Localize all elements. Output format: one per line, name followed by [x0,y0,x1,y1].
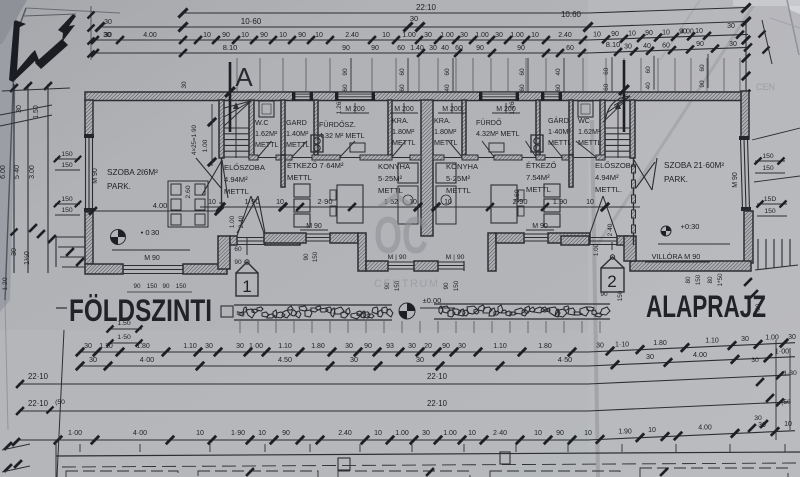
svg-text:60: 60 [519,84,526,92]
svg-text:10: 10 [208,199,216,206]
svg-text:METTL: METTL [255,140,279,149]
svg-text:4·00: 4·00 [140,355,154,364]
svg-text:7.54M²: 7.54M² [526,173,550,182]
svg-text:10: 10 [382,32,390,39]
svg-text:6.00: 6.00 [0,165,7,179]
svg-text:ELŐSZOBA: ELŐSZOBA [224,163,266,172]
svg-text:1.26: 1.26 [336,101,343,114]
svg-text:40: 40 [645,82,652,90]
svg-text:1*50: 1*50 [717,273,724,286]
svg-text:1.10: 1.10 [705,337,719,344]
svg-text:2.40: 2.40 [345,32,359,39]
svg-text:A: A [235,62,253,92]
svg-text:30: 30 [345,343,353,350]
svg-text:4.00: 4.00 [698,425,712,432]
svg-text:4.00: 4.00 [693,350,707,359]
svg-text:10·60: 10·60 [241,17,262,26]
svg-text:FÜRDŐSZ.: FÜRDŐSZ. [319,120,356,129]
svg-text:PARK.: PARK. [107,182,131,191]
svg-text:10: 10 [279,32,287,39]
svg-text:M 90: M 90 [732,172,739,188]
svg-text:1.20: 1.20 [2,277,9,290]
svg-text:60: 60 [234,246,242,253]
svg-text:(50: (50 [55,399,65,406]
svg-text:1.80M²: 1.80M² [392,127,415,136]
svg-text:1.00: 1.00 [443,430,457,437]
svg-text:SZOBA 2ℓ6M²: SZOBA 2ℓ6M² [107,168,158,177]
svg-text:80: 80 [707,276,714,284]
svg-text:90: 90 [645,30,653,37]
svg-text:90: 90 [222,32,230,39]
svg-text:W.C: W.C [255,118,269,127]
svg-text:10: 10 [315,32,323,39]
svg-text:METTL: METTL [378,186,403,195]
svg-text:4.94M²: 4.94M² [224,175,248,184]
svg-text:150: 150 [61,207,73,214]
svg-text:30: 30 [495,32,503,39]
svg-text:22·10: 22·10 [28,399,49,408]
svg-text:VILLÓRA M 90: VILLÓRA M 90 [652,252,701,261]
svg-text:• 0 30: • 0 30 [141,228,160,237]
svg-text:30: 30 [84,343,92,350]
svg-text:M 90: M 90 [306,223,322,230]
svg-text:1.80M²: 1.80M² [434,127,457,136]
svg-text:1·10: 1·10 [615,342,629,349]
svg-text:30: 30 [424,32,432,39]
svg-text:2: 2 [607,272,616,291]
svg-text:2·40: 2·40 [493,430,507,437]
svg-text:5·40: 5·40 [14,165,21,179]
svg-text:90: 90 [517,45,525,52]
svg-text:10: 10 [593,32,601,39]
svg-text:60: 60 [397,45,405,52]
svg-text:30: 30 [646,352,654,361]
svg-text:2·40: 2·40 [607,223,614,236]
svg-text:40: 40 [441,45,449,52]
svg-text:90: 90 [342,45,350,52]
svg-text:90: 90 [371,45,379,52]
svg-text:150: 150 [61,196,73,203]
svg-text:93: 93 [386,343,394,350]
svg-text:10: 10 [628,31,636,38]
svg-text:1½0: 1½0 [23,251,31,265]
svg-text:150: 150 [764,208,776,215]
svg-text:4.50: 4.50 [278,355,292,364]
svg-text:80: 80 [685,276,692,284]
svg-text:150: 150 [762,153,774,160]
svg-text:90: 90 [442,343,450,350]
svg-text:150: 150 [61,151,73,158]
svg-text:60: 60 [566,45,574,52]
svg-text:90: 90 [298,32,306,39]
svg-text:22·10: 22·10 [427,372,448,381]
svg-text:1.00: 1.00 [765,335,779,342]
svg-text:1.00: 1.00 [440,32,454,39]
svg-text:30: 30 [103,32,111,39]
svg-text:30: 30 [460,32,468,39]
svg-text:90: 90 [556,430,564,437]
svg-text:15D: 15D [764,196,777,203]
svg-text:60: 60 [645,66,652,74]
svg-text:60: 60 [399,84,406,92]
svg-text:10: 10 [695,28,703,35]
svg-text:2·40: 2·40 [238,215,245,228]
svg-text:150: 150 [695,274,702,285]
svg-text:22:10: 22:10 [416,3,437,12]
svg-text:GÁRD: GÁRD [548,116,569,125]
svg-text:2.40: 2.40 [338,430,352,437]
svg-text:M 90: M 90 [92,168,99,184]
svg-text:60: 60 [603,67,610,75]
svg-text:M | 90: M | 90 [446,254,465,261]
svg-text:90: 90 [282,430,290,437]
svg-text:90: 90 [476,45,484,52]
svg-text:60: 60 [603,83,610,91]
svg-text:ÉTKEZŐ 7·64M²: ÉTKEZŐ 7·64M² [287,161,344,170]
svg-text:METTL: METTL [434,138,458,147]
svg-text:1.00: 1.00 [202,139,209,152]
svg-text:1·26: 1·26 [509,101,516,114]
svg-text:M 90: M 90 [532,223,548,230]
svg-text:150: 150 [312,251,319,262]
svg-text:8.10: 8.10 [223,43,238,52]
svg-text:1.80: 1.80 [311,343,325,350]
svg-text:CENTRUM: CENTRUM [374,278,440,290]
svg-text:SZOBA 21·60M²: SZOBA 21·60M² [664,161,724,170]
svg-text:10: 10 [531,32,539,39]
svg-text:30: 30 [458,343,466,350]
svg-text:ALAPRAJZ: ALAPRAJZ [646,288,766,324]
svg-text:90: 90 [364,343,372,350]
svg-text:150: 150 [176,283,187,290]
svg-text:40: 40 [555,68,562,76]
svg-text:8.10: 8.10 [606,40,621,49]
svg-text:40: 40 [444,84,451,92]
svg-text:PARK.: PARK. [664,175,688,184]
svg-text:10: 10 [586,199,594,206]
svg-text:30: 30 [236,343,244,350]
svg-text:10:60: 10:60 [561,10,582,19]
svg-text:30: 30 [788,334,796,341]
svg-text:1·40M²: 1·40M² [548,127,571,136]
svg-text:90: 90 [443,282,450,290]
svg-text:10: 10 [784,421,792,428]
svg-text:FÜRDŐ: FÜRDŐ [476,118,502,127]
svg-text:10: 10 [276,199,284,206]
svg-text:METTL: METTL [446,186,471,195]
svg-text:90: 90 [696,41,704,48]
svg-text:90: 90 [260,32,268,39]
svg-text:60: 60 [662,42,670,49]
svg-text:150: 150 [147,283,158,290]
svg-text:METTL: METTL [526,185,551,194]
svg-text:OC: OC [374,207,428,265]
svg-text:30: 30 [181,81,188,89]
svg-text:1·00: 1·00 [775,346,789,355]
svg-text:60: 60 [444,68,451,76]
svg-text:1.80: 1.80 [538,343,552,350]
svg-text:30: 30 [596,343,604,350]
svg-text:30: 30 [741,336,749,343]
svg-text:90: 90 [611,31,619,38]
svg-text:METTL.: METTL. [595,185,622,194]
svg-text:90: 90 [162,283,170,290]
svg-text:10: 10 [258,430,266,437]
svg-text:30: 30 [350,355,358,364]
svg-text:4.32 M² METL: 4.32 M² METL [319,131,365,140]
svg-text:30: 30 [205,343,213,350]
svg-text:5·25M²: 5·25M² [446,174,471,183]
svg-text:5·25M²: 5·25M² [378,174,403,183]
svg-text:150: 150 [61,162,73,169]
svg-text:+0:30: +0:30 [681,222,700,231]
svg-text:1.10: 1.10 [278,343,292,350]
svg-text:10: 10 [203,32,211,39]
svg-text:10: 10 [534,430,542,437]
svg-text:30: 30 [422,430,430,437]
svg-text:KRA.: KRA. [434,116,451,125]
svg-text:ÉTKEZŐ: ÉTKEZŐ [526,161,556,170]
svg-text:30: 30 [754,415,762,422]
svg-text:60: 60 [699,64,706,72]
svg-text:3.00: 3.00 [29,165,36,179]
svg-text:10: 10 [648,427,656,434]
svg-text:1.10: 1.10 [183,343,197,350]
svg-text:4.00: 4.00 [143,32,157,39]
svg-text:Bw: Bw [237,311,244,317]
svg-text:1.62M²: 1.62M² [255,129,278,138]
svg-text:150: 150 [762,165,774,172]
svg-text:30: 30 [104,19,112,26]
svg-text:90: 90 [303,253,310,261]
svg-text:1.00: 1.00 [395,430,409,437]
svg-text:KRA.: KRA. [392,116,409,125]
svg-text:90: 90 [699,80,706,88]
svg-text:20: 20 [424,343,432,350]
svg-text:1.62M²: 1.62M² [578,127,601,136]
svg-text:GARD: GARD [286,118,307,127]
svg-text:1.00: 1.00 [402,32,416,39]
svg-text:30: 30 [729,41,737,48]
svg-text:30: 30 [89,355,97,364]
svg-text:M 90: M 90 [144,255,160,262]
svg-text:ELŐSZOBA: ELŐSZOBA [595,161,637,170]
svg-text:30: 30 [751,357,759,364]
svg-text:60: 60 [519,68,526,76]
svg-text:30: 30 [410,14,418,23]
svg-text:4·50: 4·50 [558,355,572,364]
svg-text:10: 10 [241,32,249,39]
svg-text:90: 90 [234,259,242,266]
svg-text:30: 30 [429,45,437,52]
svg-text:1·50: 1·50 [117,334,131,341]
svg-text:60: 60 [399,68,406,76]
svg-text:1.00: 1.00 [229,215,236,228]
svg-text:150: 150 [453,280,460,291]
svg-text:1·00: 1·00 [68,430,82,437]
svg-text:30: 30 [727,23,735,30]
svg-text:4·00: 4·00 [133,430,147,437]
svg-text:10: 10 [374,430,382,437]
svg-text:1·90: 1·90 [231,430,245,437]
svg-text:22·10: 22·10 [28,372,49,381]
svg-text:1.10: 1.10 [493,343,507,350]
svg-text:1.00: 1.00 [593,243,600,256]
svg-text:10: 10 [662,29,670,36]
svg-text:10: 10 [584,430,592,437]
svg-text:40: 40 [643,43,651,50]
svg-text:2.40: 2.40 [558,32,572,39]
svg-text:22·10: 22·10 [427,399,448,408]
svg-text:30: 30 [11,248,18,256]
svg-text:1.90: 1.90 [618,428,632,435]
svg-text:10: 10 [468,430,476,437]
svg-text:30: 30 [416,355,424,364]
svg-text:1.00: 1.00 [475,32,489,39]
svg-text:60: 60 [555,84,562,92]
svg-text:4.00: 4.00 [153,201,168,210]
svg-text:30: 30 [408,343,416,350]
svg-text:1.80: 1.80 [653,340,667,347]
svg-text:90: 90 [342,68,349,76]
svg-text:1: 1 [242,277,251,296]
svg-text:60: 60 [342,84,349,92]
svg-text:30: 30 [624,44,632,51]
svg-text:METTL: METTL [548,138,572,147]
svg-text:2.60: 2.60 [185,185,192,198]
svg-text:4.32M² METL: 4.32M² METL [476,129,520,138]
svg-text:CEN: CEN [756,82,775,92]
svg-text:4.94M²: 4.94M² [595,173,619,182]
svg-text:4×25=1·90: 4×25=1·90 [191,124,198,154]
svg-text:1.80: 1.80 [136,343,150,350]
svg-text:1.40M²: 1.40M² [286,129,309,138]
svg-text:10: 10 [196,430,204,437]
svg-text:METTL: METTL [287,173,312,182]
svg-text:90: 90 [133,283,141,290]
svg-text:1.00: 1.00 [510,32,524,39]
svg-text:FÖLDSZINTI: FÖLDSZINTI [69,292,212,328]
